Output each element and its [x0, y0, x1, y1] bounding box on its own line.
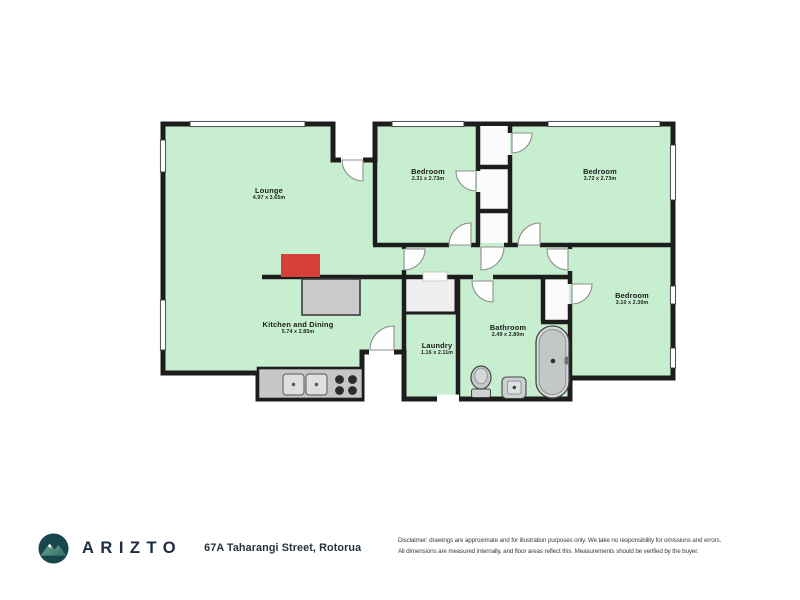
window	[392, 121, 464, 126]
floorplan-drawing	[0, 0, 800, 600]
brand-name: ARIZTO	[82, 539, 182, 558]
laundry-closet	[406, 279, 456, 314]
bathroom-sink	[502, 377, 526, 399]
kitchen-counter	[258, 368, 363, 399]
arizto-mountain-logo-icon	[38, 533, 69, 564]
window	[160, 140, 165, 172]
window	[670, 286, 675, 304]
hall-closet-column	[477, 126, 510, 243]
bedroom3-closet	[543, 280, 569, 321]
disclaimer-line-2: All dimensions are measured internally, …	[398, 547, 778, 558]
kitchen-bench	[302, 279, 360, 315]
window	[670, 145, 675, 200]
tub-handle	[565, 357, 570, 365]
window	[670, 348, 675, 368]
disclaimer-line-1: Disclaimer: drawings are approximate and…	[398, 536, 778, 547]
disclaimer-text: Disclaimer: drawings are approximate and…	[398, 536, 778, 557]
fireplace-feature	[281, 254, 320, 277]
laundry-door-opening	[437, 395, 459, 404]
toilet	[471, 366, 491, 398]
property-address: 67A Taharangi Street, Rotorua	[204, 542, 361, 554]
laundry-closet-opening	[423, 272, 447, 281]
footer: ARIZTO 67A Taharangi Street, Rotorua	[38, 530, 361, 566]
window	[160, 300, 165, 350]
window	[548, 121, 660, 126]
floorplan-page: Lounge 4.97 x 3.65m Bedroom 2.31 x 2.73m…	[0, 0, 800, 600]
tub-drain	[551, 359, 556, 364]
bathtub	[536, 326, 569, 398]
window	[190, 121, 305, 126]
